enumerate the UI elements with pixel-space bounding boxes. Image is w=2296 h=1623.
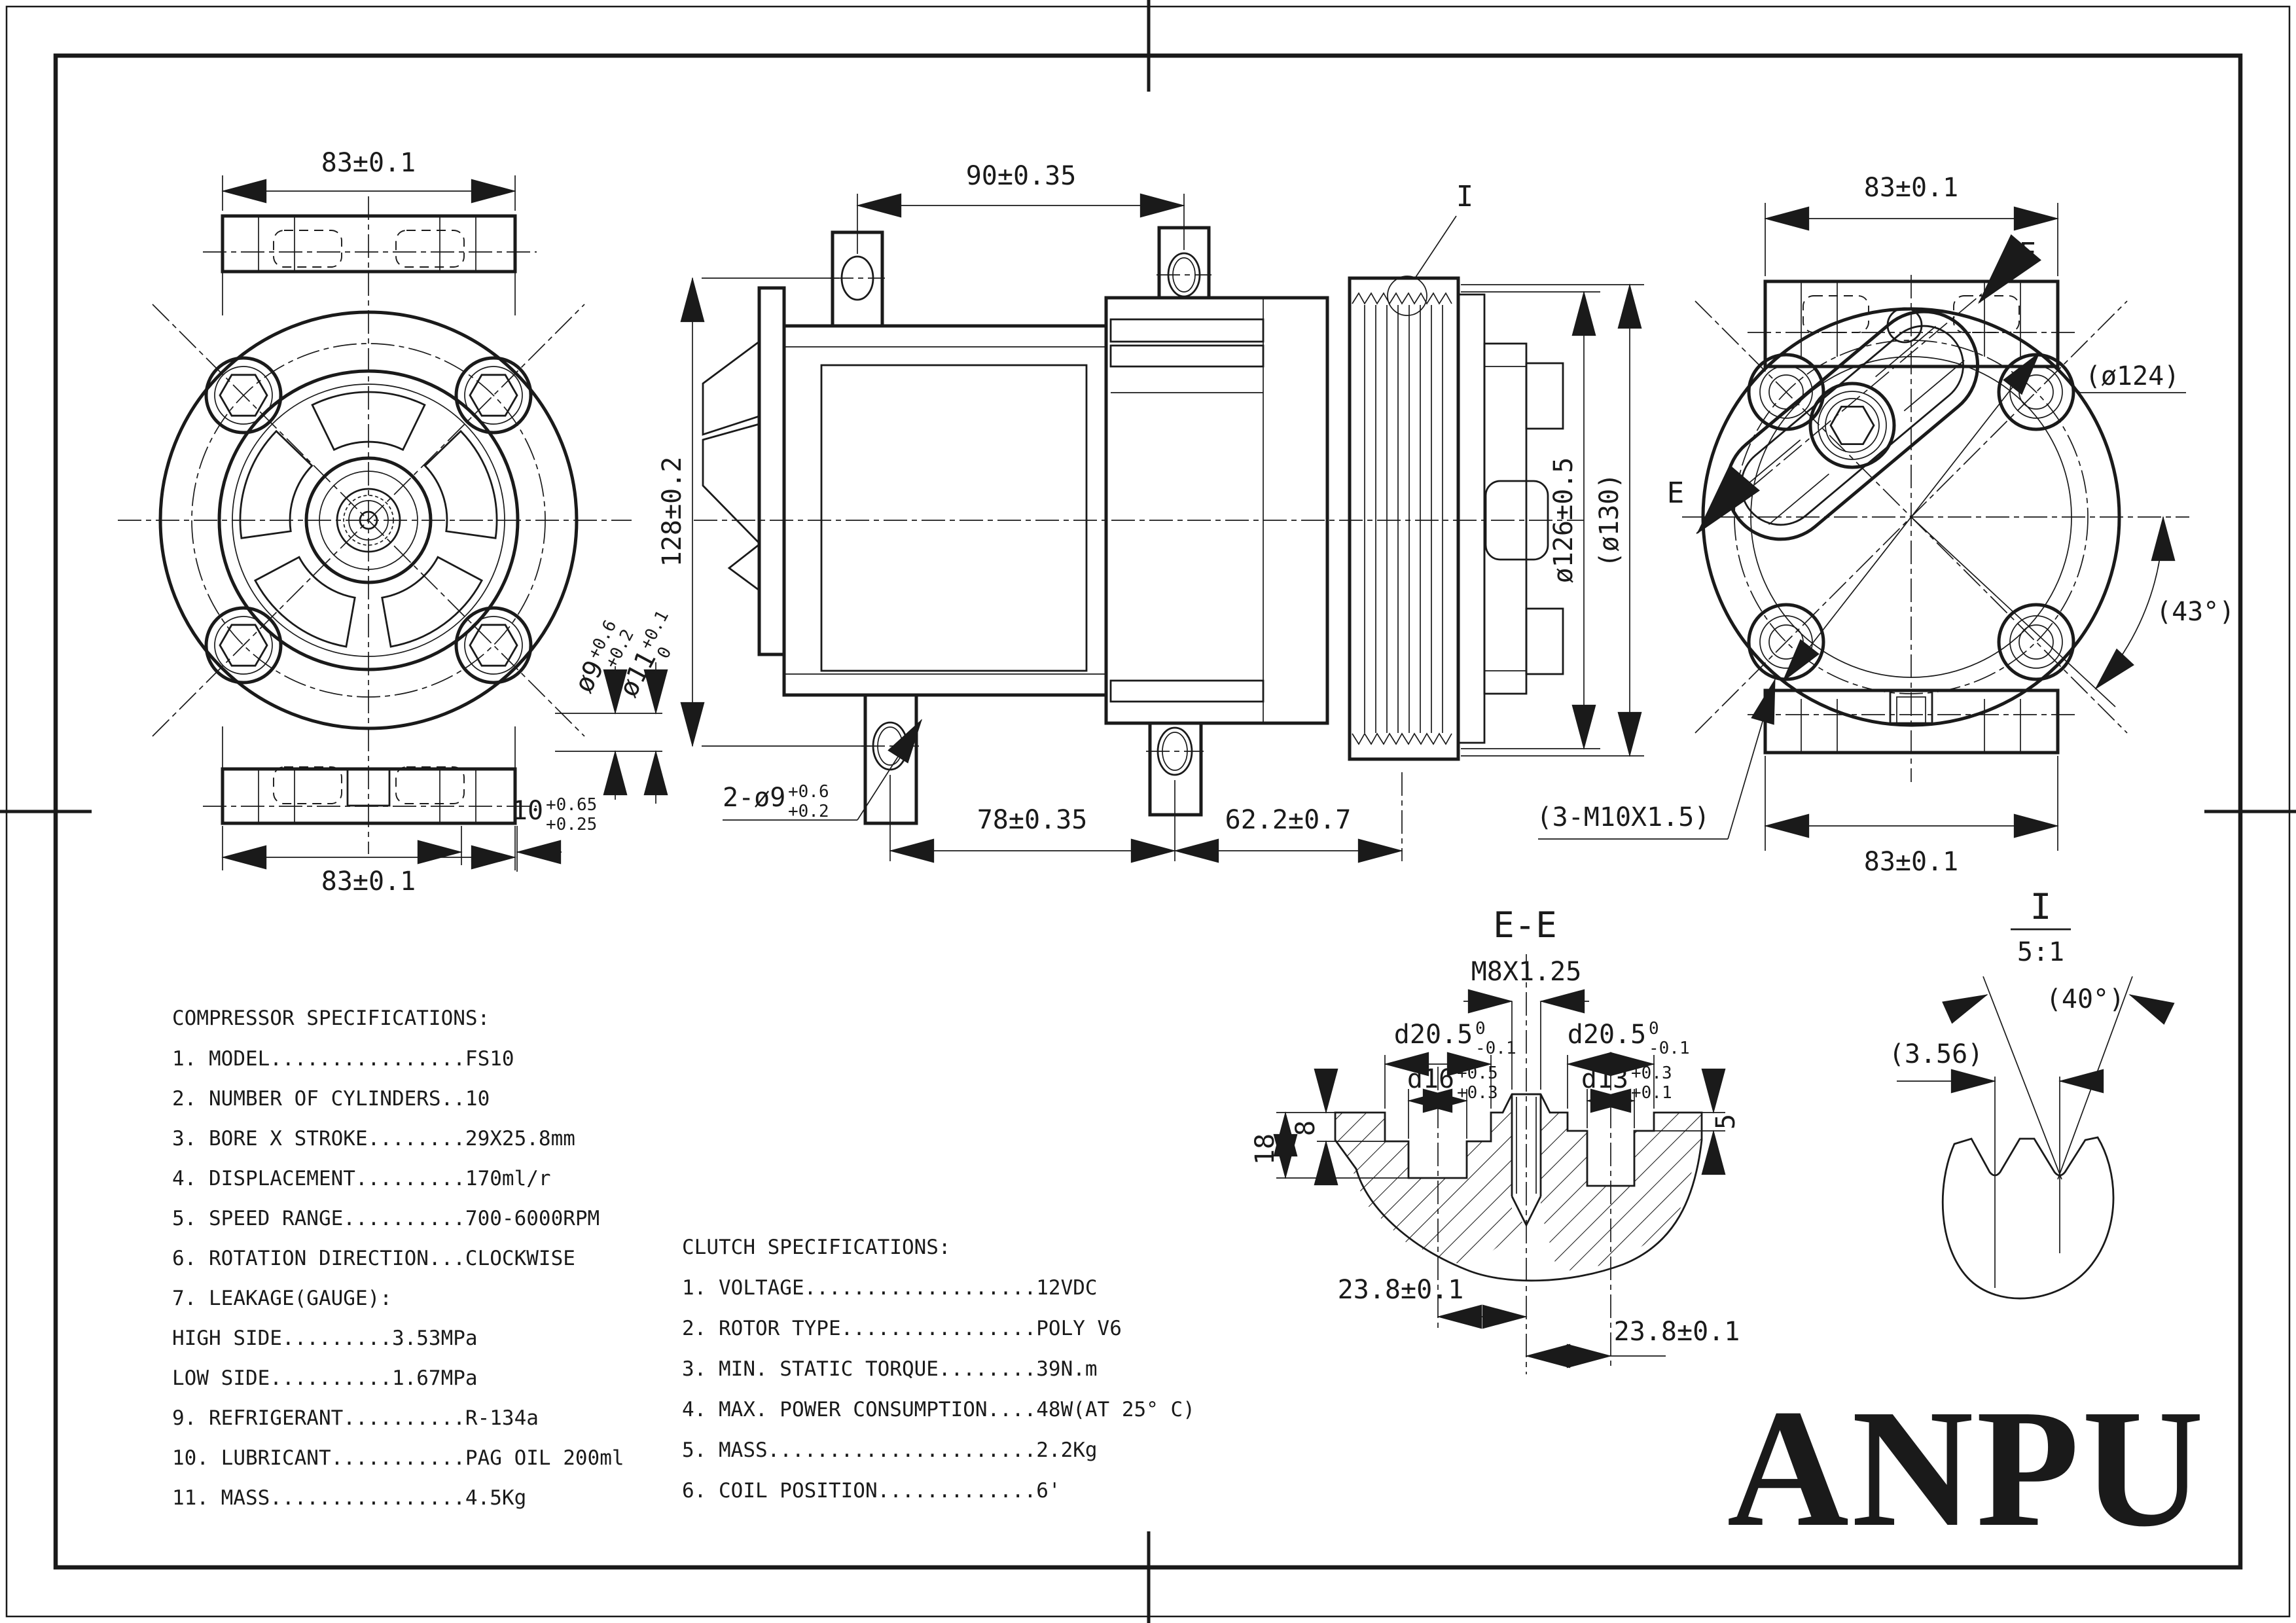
section-label: E <box>2019 237 2037 270</box>
spec-line: 3. BORE X STROKE........29X25.8mm <box>172 1127 575 1150</box>
dim-text: 83±0.1 <box>321 148 416 178</box>
spec-line: 4. DISPLACEMENT.........170ml/r <box>172 1167 551 1190</box>
side-dim-bottom-holes: 2-ø9 +0.6 +0.2 <box>723 720 922 821</box>
section-ee: E-E M8X1.25 d20.5 <box>1250 904 1741 1374</box>
dim-text: 23.8±0.1 <box>1338 1275 1464 1305</box>
dim-text: (3.56) <box>1889 1039 1984 1069</box>
dim-tol-sub: -0.1 <box>1475 1039 1516 1058</box>
dim-text: 10 <box>512 796 543 826</box>
dim-text: (ø130) <box>1594 473 1624 568</box>
detail-ref-label: I <box>1456 180 1474 213</box>
side-dim-pulley-dia: ø126±0.5 (ø130) <box>1461 285 1644 756</box>
dim-text: 83±0.1 <box>1864 173 1959 203</box>
spec-line: LOW SIDE..........1.67MPa <box>172 1366 478 1390</box>
spec-line: 6. ROTATION DIRECTION...CLOCKWISE <box>172 1247 575 1270</box>
side-dim-top-span: 90±0.35 <box>857 161 1184 254</box>
detail-i: I 5:1 (40°) (3.56) <box>1889 886 2168 1298</box>
brand-logo: ANPU <box>1727 1374 2207 1561</box>
spec-line: 1. VOLTAGE...................12VDC <box>682 1276 1098 1300</box>
rear-center-bolt <box>1810 383 1894 467</box>
belt-groove-profile <box>1943 1137 2113 1298</box>
dim-tol-sup: +0.5 <box>1457 1063 1498 1083</box>
dim-text: 5 <box>1711 1114 1741 1130</box>
dim-tol-sup: +0.3 <box>1631 1063 1672 1083</box>
spec-line: 9. REFRIGERANT..........R-134a <box>172 1406 539 1430</box>
side-pulley <box>1350 278 1563 759</box>
spec-line: 7. LEAKAGE(GAUGE): <box>172 1287 392 1310</box>
dim-offset-left: 23.8±0.1 <box>1338 1275 1526 1317</box>
dim-text: 18 <box>1250 1133 1280 1165</box>
front-ear-bolt <box>456 608 531 683</box>
side-front-housing <box>784 326 1106 695</box>
side-dim-height: 128±0.2 <box>657 278 870 746</box>
dim-text: (3-M10X1.5) <box>1537 802 1710 832</box>
dim-text: d16 <box>1407 1064 1454 1094</box>
compressor-specifications: COMPRESSOR SPECIFICATIONS: 1. MODEL.....… <box>172 1007 624 1510</box>
dim-text: 90±0.35 <box>966 161 1077 191</box>
dim-text: ø126±0.5 <box>1549 457 1579 584</box>
spec-line: 11. MASS................4.5Kg <box>172 1486 526 1510</box>
spec-title: COMPRESSOR SPECIFICATIONS: <box>172 1007 490 1030</box>
side-rear-housing <box>1106 298 1327 723</box>
dim-text: d20.5 <box>1568 1020 1646 1050</box>
rear-oblong-boss <box>1705 290 2000 562</box>
section-title: E-E <box>1493 904 1557 946</box>
side-nose-bracket <box>703 288 784 654</box>
dim-tol-sub: +0.1 <box>1631 1083 1672 1103</box>
dim-text: 83±0.1 <box>1864 847 1959 877</box>
front-bottom-flange <box>203 726 537 823</box>
dim-text: (40°) <box>2046 984 2125 1014</box>
front-view: 83±0.1 83±0.1 ø9 +0.6 +0.2 ø11 +0.1 0 <box>118 148 690 897</box>
side-dim-foot-span: 78±0.35 62.2±0.7 <box>890 772 1402 861</box>
detail-scale: 5:1 <box>2017 937 2064 967</box>
side-view: I 90±0.35 128±0.2 2-ø9 +0.6 +0.2 <box>657 161 1644 861</box>
spec-line: 2. ROTOR TYPE................POLY V6 <box>682 1317 1122 1340</box>
dim-text: d13 <box>1581 1064 1628 1094</box>
spec-line: 4. MAX. POWER CONSUMPTION....48W(AT 25° … <box>682 1398 1195 1421</box>
drawing-page: 83±0.1 83±0.1 ø9 +0.6 +0.2 ø11 +0.1 0 <box>0 0 2296 1623</box>
detail-title: I <box>2030 886 2052 927</box>
dim-tol-sub: +0.25 <box>546 815 597 834</box>
dim-tol-sup: +0.1 <box>636 607 673 652</box>
clutch-specifications: CLUTCH SPECIFICATIONS: 1. VOLTAGE.......… <box>682 1236 1195 1503</box>
rear-thread-callout: (3-M10X1.5) <box>1537 679 1775 839</box>
rear-bolt-hole <box>1999 605 2073 679</box>
dim-tol-sup: 0 <box>1475 1019 1486 1039</box>
dim-text: 78±0.35 <box>977 805 1088 835</box>
spec-line: 10. LUBRICANT...........PAG OIL 200ml <box>172 1446 624 1470</box>
dim-text: (43°) <box>2156 597 2234 627</box>
spec-line: 5. SPEED RANGE..........700-6000RPM <box>172 1207 600 1230</box>
spec-line: 5. MASS......................2.2Kg <box>682 1438 1098 1462</box>
dim-tol-sub: +0.2 <box>788 802 829 821</box>
dim-text: 128±0.2 <box>657 457 687 567</box>
spec-line: 3. MIN. STATIC TORQUE........39N.m <box>682 1357 1098 1381</box>
front-dim-lug-hole: ø9 +0.6 +0.2 ø11 +0.1 0 <box>555 607 690 804</box>
dim-tol-sup: +0.6 <box>788 782 829 802</box>
dim-text: M8X1.25 <box>1471 957 1582 987</box>
dim-text: 62.2±0.7 <box>1225 805 1352 835</box>
dim-text: 83±0.1 <box>321 866 416 897</box>
dim-text: 8 <box>1291 1120 1321 1136</box>
rear-dim-width-top: 83±0.1 <box>1765 173 2058 276</box>
dim-text: d20.5 <box>1394 1020 1473 1050</box>
spec-line: 1. MODEL................FS10 <box>172 1047 514 1071</box>
front-top-flange <box>203 216 537 315</box>
spec-title: CLUTCH SPECIFICATIONS: <box>682 1236 951 1259</box>
dim-tol-sup: +0.65 <box>546 795 597 815</box>
dim-tol-sub: +0.3 <box>1457 1083 1498 1103</box>
spec-line: HIGH SIDE.........3.53MPa <box>172 1327 478 1350</box>
dim-offset-right: 23.8±0.1 <box>1526 1317 1740 1356</box>
compressor-engineering-drawing: 83±0.1 83±0.1 ø9 +0.6 +0.2 ø11 +0.1 0 <box>0 0 2296 1623</box>
dim-d16: d16 +0.5 +0.3 <box>1407 1063 1498 1139</box>
dim-text: 23.8±0.1 <box>1614 1317 1740 1347</box>
rear-view: E E 83±0.1 83±0.1 (ø124) (43°) (3-M10X1.… <box>1537 173 2235 877</box>
dim-text: (ø124) <box>2085 361 2180 391</box>
dim-text: 2-ø9 <box>723 783 785 813</box>
dim-tol-sup: 0 <box>1649 1019 1659 1039</box>
dim-tol-sub: -0.1 <box>1649 1039 1690 1058</box>
section-label: E <box>1667 476 1685 510</box>
spec-line: 6. COIL POSITION.............6' <box>682 1479 1061 1503</box>
spec-line: 2. NUMBER OF CYLINDERS..10 <box>172 1087 490 1111</box>
